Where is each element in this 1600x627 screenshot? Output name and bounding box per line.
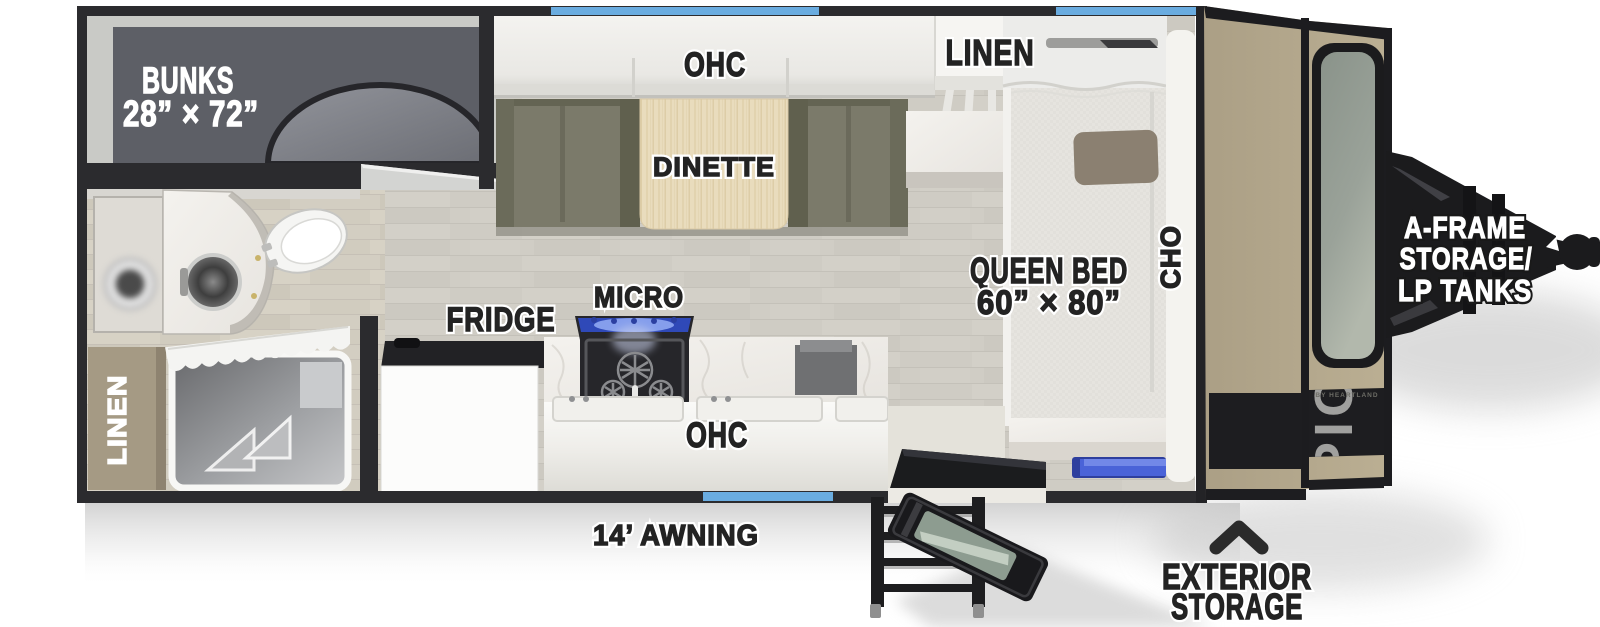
svg-text:BY HEARTLAND: BY HEARTLAND bbox=[1315, 392, 1378, 399]
svg-text:LP TANKS: LP TANKS bbox=[1398, 273, 1532, 308]
svg-text:LINEN: LINEN bbox=[102, 375, 132, 466]
svg-text:A-FRAME: A-FRAME bbox=[1404, 210, 1526, 245]
svg-text:LINEN: LINEN bbox=[946, 32, 1035, 73]
svg-text:60” × 80”: 60” × 80” bbox=[977, 284, 1121, 322]
svg-text:STORAGE: STORAGE bbox=[1171, 586, 1303, 627]
svg-text:CHO: CHO bbox=[1155, 225, 1186, 289]
svg-text:DINETTE: DINETTE bbox=[653, 152, 775, 182]
svg-text:14’ AWNING: 14’ AWNING bbox=[593, 520, 759, 552]
svg-text:OHC: OHC bbox=[684, 46, 746, 84]
svg-text:28” × 72”: 28” × 72” bbox=[123, 93, 259, 134]
svg-text:STORAGE/: STORAGE/ bbox=[1400, 241, 1533, 276]
svg-text:FRIDGE: FRIDGE bbox=[447, 301, 556, 339]
svg-text:OHC: OHC bbox=[686, 416, 748, 455]
svg-text:MICRO: MICRO bbox=[594, 282, 684, 314]
